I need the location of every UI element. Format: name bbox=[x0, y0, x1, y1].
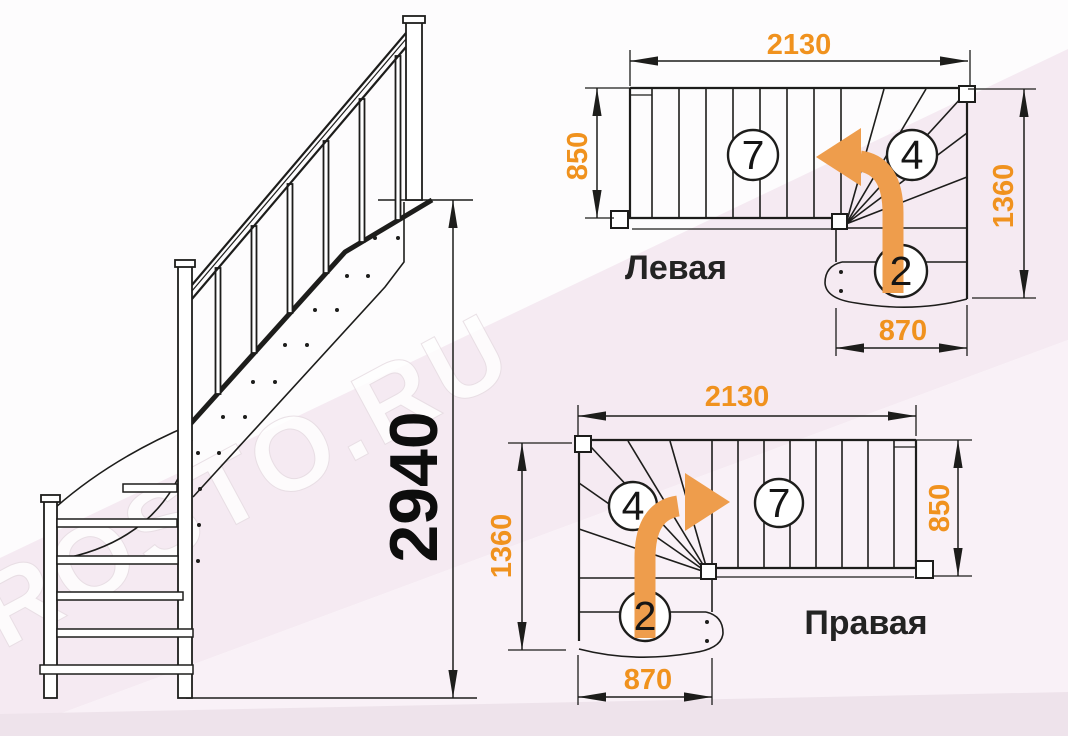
newel-post-marker bbox=[611, 211, 628, 228]
newel-post-marker bbox=[832, 214, 847, 229]
stair-diagram: LESTNICY-PROSTO.RU bbox=[0, 0, 1068, 736]
newel-post-marker bbox=[701, 564, 716, 579]
stair-drawing-page: LESTNICY-PROSTO.RU bbox=[0, 0, 1068, 736]
winder-steps-count: 4 bbox=[622, 483, 645, 529]
left-plan-label: Левая bbox=[625, 249, 727, 287]
dimension-depth-left: 850 bbox=[562, 88, 614, 218]
height-right-value: 1360 bbox=[988, 164, 1020, 229]
width-bottom-value: 870 bbox=[624, 664, 672, 696]
total-rise-value: 2940 bbox=[376, 411, 452, 562]
newel-post-marker bbox=[916, 561, 933, 578]
bottom-steps-count: 2 bbox=[634, 593, 657, 639]
right-plan-label: Правая bbox=[804, 604, 927, 642]
top-newel-post bbox=[403, 16, 425, 200]
width-bottom-value: 870 bbox=[879, 315, 927, 347]
width-top-value: 2130 bbox=[767, 29, 832, 61]
dimension-width-top: 2130 bbox=[630, 29, 970, 86]
winder-steps-count: 4 bbox=[901, 132, 924, 178]
newel-post-marker bbox=[575, 436, 591, 452]
straight-steps-count: 7 bbox=[768, 480, 791, 526]
height-left-value: 1360 bbox=[486, 514, 518, 579]
depth-left-value: 850 bbox=[562, 132, 594, 180]
straight-steps-count: 7 bbox=[742, 132, 765, 178]
handrail bbox=[186, 33, 406, 306]
depth-right-value: 850 bbox=[924, 484, 956, 532]
width-top-value: 2130 bbox=[705, 381, 770, 413]
bottom-steps-count: 2 bbox=[890, 248, 913, 294]
